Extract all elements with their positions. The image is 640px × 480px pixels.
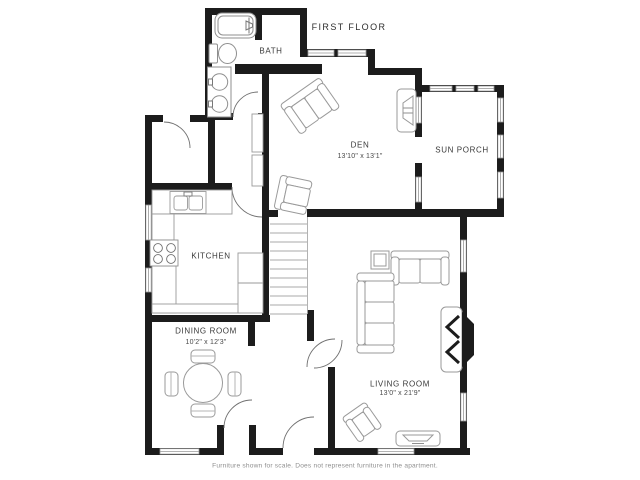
window-icon	[456, 86, 474, 91]
door-swing-icon	[164, 122, 190, 148]
floorplan-drawing	[0, 0, 640, 480]
pantry-shelves-icon	[252, 114, 263, 186]
vanity-double-sink-icon	[208, 67, 232, 117]
window-icon	[308, 50, 334, 56]
media-console-icon	[396, 431, 440, 446]
den-furniture	[274, 77, 416, 214]
armchair-icon	[342, 402, 382, 443]
window-icon	[146, 205, 151, 240]
fireplace-icon	[441, 307, 474, 372]
living-room-furniture	[342, 251, 474, 446]
kitchen-fixtures	[150, 114, 263, 313]
window-icon	[338, 50, 366, 56]
counter	[152, 214, 174, 240]
loveseat-icon	[280, 77, 340, 134]
window-icon	[416, 177, 421, 202]
room-dims-living-room: 13'0" x 21'9"	[380, 390, 421, 398]
room-dims-den: 13'10" x 13'1"	[337, 153, 382, 161]
kitchen-sink-icon	[170, 192, 206, 214]
window-icon	[461, 393, 466, 421]
window-icon	[430, 86, 452, 91]
room-label-kitchen: KITCHEN	[191, 253, 230, 262]
window-icon	[416, 97, 421, 123]
refrigerator-icon	[238, 253, 263, 313]
window-icon	[498, 135, 503, 158]
page-title: FIRST FLOOR	[312, 23, 387, 33]
door-swing-icon	[224, 400, 252, 428]
stove-icon	[150, 240, 178, 266]
armchair-icon	[274, 175, 312, 215]
scale-disclaimer: Furniture shown for scale. Does not repr…	[212, 462, 438, 469]
staircase-icon	[270, 217, 308, 314]
door-swing-icon	[232, 187, 262, 217]
window-icon	[461, 240, 466, 272]
room-label-dining-room: DINING ROOM	[175, 328, 237, 337]
door-swing-icon	[233, 92, 258, 117]
window-icon	[498, 172, 503, 198]
window-icon	[478, 86, 494, 91]
room-label-living-room: LIVING ROOM	[370, 381, 430, 390]
door-swing-icon	[283, 417, 314, 448]
tv-icon	[397, 89, 416, 132]
window-icon	[146, 268, 151, 292]
window-icon	[378, 449, 414, 454]
floorplan-page: FIRST FLOOR BATH DEN 13'10" x 13'1" SUN …	[0, 0, 640, 480]
room-label-den: DEN	[351, 142, 370, 151]
counter	[152, 304, 240, 313]
room-label-sun-porch: SUN PORCH	[435, 147, 488, 156]
end-table-icon	[371, 251, 389, 269]
dining-table-icon	[165, 350, 241, 417]
room-dims-dining-room: 10'2" x 12'3"	[186, 339, 227, 347]
room-label-bath: BATH	[259, 48, 282, 57]
bathtub-icon	[215, 13, 256, 38]
window-icon	[498, 98, 503, 122]
toilet-icon	[209, 44, 237, 64]
window-icon	[160, 449, 199, 454]
